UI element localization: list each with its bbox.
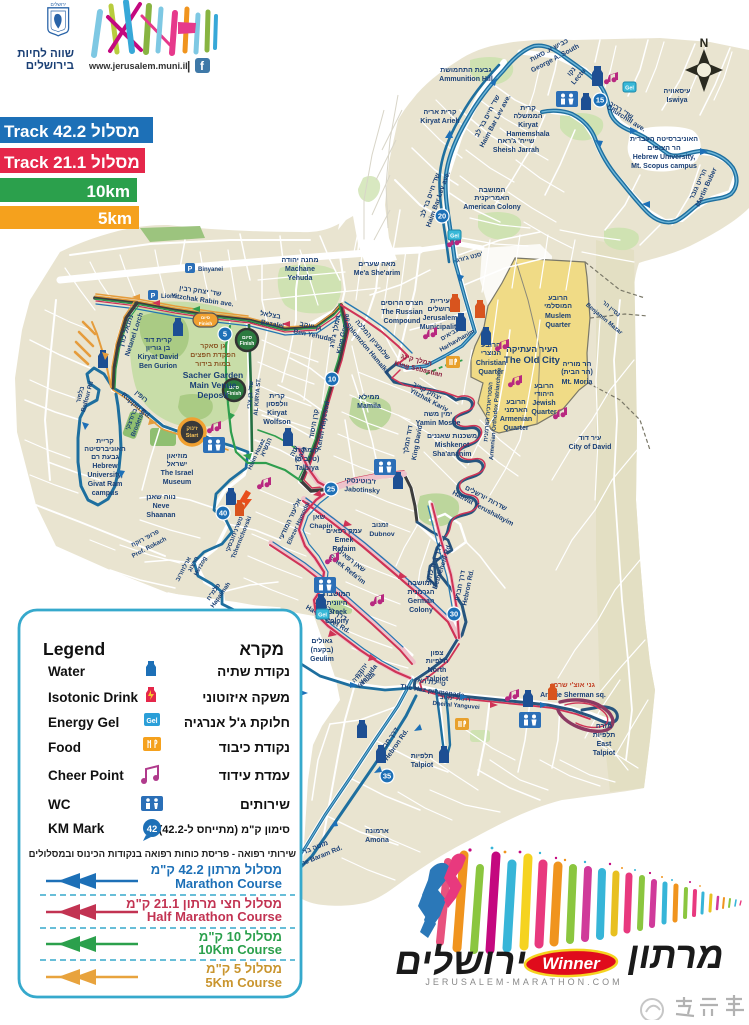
svg-text:Me'a She'arim: Me'a She'arim	[354, 270, 401, 277]
svg-text:גני אוצ'י שרמן: גני אוצ'י שרמן	[551, 682, 596, 689]
svg-text:צפון: צפון	[430, 650, 443, 657]
svg-text:Jerusalem: Jerusalem	[423, 315, 458, 322]
svg-text:40: 40	[219, 509, 227, 518]
svg-text:הגרמנית: הגרמנית	[407, 589, 434, 596]
svg-text:קרית: קרית	[520, 105, 536, 112]
svg-text:Cheer Point: Cheer Point	[48, 768, 124, 783]
svg-text:סימון ק"מ (מתייחס ל-42.2): סימון ק"מ (מתייחס ל-42.2)	[159, 823, 291, 836]
svg-text:שווה לחיות: שווה לחיות	[17, 47, 74, 60]
svg-text:Lions: Lions	[161, 294, 178, 300]
svg-text:5: 5	[223, 330, 227, 339]
svg-text:Winner: Winner	[542, 954, 601, 973]
svg-text:Start: Start	[186, 433, 199, 439]
svg-text:Kiryat: Kiryat	[518, 122, 539, 129]
svg-text:תלפיות: תלפיות	[426, 657, 449, 665]
svg-text:Amona: Amona	[365, 837, 389, 844]
svg-text:15: 15	[596, 96, 604, 105]
svg-text:Machane: Machane	[285, 266, 315, 273]
svg-text:מסלול 5 ק"מ: מסלול 5 ק"מ	[206, 961, 282, 976]
svg-text:Kiryat: Kiryat	[267, 410, 288, 417]
svg-text:42: 42	[147, 824, 158, 835]
svg-text:תלפיות: תלפיות	[411, 752, 434, 760]
svg-text:Wolfson: Wolfson	[263, 419, 290, 426]
svg-text:קרית אריה: קרית אריה	[423, 109, 456, 116]
svg-text:Shaanan: Shaanan	[146, 512, 175, 519]
svg-text:Finish: Finish	[240, 341, 255, 347]
svg-text:הר הצופים: הר הצופים	[647, 145, 681, 152]
svg-text:סיום: סיום	[201, 315, 210, 320]
svg-text:University,: University,	[87, 472, 122, 479]
svg-text:JERUSALEM-MARATHON.COM: JERUSALEM-MARATHON.COM	[425, 977, 622, 987]
svg-text:ארמונה: ארמונה	[365, 828, 389, 835]
svg-text:Ben Gurion: Ben Gurion	[139, 363, 177, 370]
svg-text:שירותים: שירותים	[240, 797, 290, 812]
svg-text:הרובע: הרובע	[506, 399, 526, 406]
svg-text:העיר העתיקה: העיר העתיקה	[506, 344, 558, 354]
svg-text:Food: Food	[48, 740, 81, 755]
svg-text:Finish: Finish	[199, 321, 213, 326]
svg-text:|: |	[187, 59, 190, 73]
svg-text:Finish: Finish	[227, 391, 242, 397]
svg-text:Kiryat David: Kiryat David	[138, 354, 179, 361]
svg-text:Gel: Gel	[318, 613, 327, 619]
svg-text:Geulim: Geulim	[310, 656, 334, 663]
svg-text:N: N	[700, 36, 709, 50]
svg-text:גן סאקר: גן סאקר	[200, 343, 226, 350]
svg-text:הפקדת חפצים: הפקדת חפצים	[190, 352, 236, 359]
svg-text:Kiryat Arieh: Kiryat Arieh	[420, 118, 459, 125]
svg-text:www.jerusalem.muni.il: www.jerusalem.muni.il	[88, 61, 188, 71]
svg-text:המוסלמי: המוסלמי	[544, 302, 572, 310]
svg-text:Binyanei: Binyanei	[198, 267, 223, 273]
svg-text:Main Venue: Main Venue	[190, 380, 237, 390]
svg-text:Hebrew University,: Hebrew University,	[633, 154, 696, 161]
svg-text:בירושלים: בירושלים	[26, 59, 74, 72]
svg-text:Quarter: Quarter	[503, 425, 529, 432]
svg-text:Hamemshala: Hamemshala	[506, 131, 549, 138]
svg-text:הממשלה: הממשלה	[513, 112, 542, 120]
svg-text:הרובע: הרובע	[534, 383, 554, 390]
svg-text:North: North	[428, 667, 447, 674]
svg-text:Neve: Neve	[153, 503, 170, 510]
svg-text:35: 35	[383, 772, 391, 781]
svg-text:זינוק: זינוק	[186, 426, 197, 432]
svg-text:היהודי: היהודי	[534, 391, 554, 398]
svg-text:ירושלים: ירושלים	[392, 940, 531, 982]
svg-text:נווה שאנן: נווה שאנן	[146, 494, 175, 501]
svg-text:Jewish: Jewish	[532, 400, 555, 407]
svg-text:Track 42.2 מסלול: Track 42.2 מסלול	[4, 122, 140, 141]
svg-text:Deposit: Deposit	[197, 390, 228, 400]
svg-text:תלפיות: תלפיות	[593, 731, 616, 739]
svg-text:Marathon Course: Marathon Course	[175, 876, 282, 891]
svg-text:גאולים: גאולים	[311, 637, 333, 645]
svg-text:Mamila: Mamila	[357, 403, 381, 410]
svg-text:הר מוריה: הר מוריה	[563, 361, 592, 368]
svg-text:Track 21.1 מסלול: Track 21.1 מסלול	[4, 153, 140, 172]
svg-text:מסלול מרתון 42.2 ק"מ: מסלול מרתון 42.2 ק"מ	[151, 862, 282, 877]
svg-text:30: 30	[450, 610, 458, 619]
svg-text:Christian: Christian	[476, 360, 506, 367]
svg-text:שייח' ג'ראח: שייח' ג'ראח	[498, 138, 535, 145]
svg-text:Gel: Gel	[625, 86, 634, 92]
svg-text:Talpiot: Talpiot	[593, 750, 616, 757]
svg-text:Ammunition Hill: Ammunition Hill	[439, 76, 493, 83]
svg-text:עיר דוד: עיר דוד	[579, 435, 602, 442]
svg-text:Sha'ananim: Sha'ananim	[432, 451, 471, 458]
svg-text:חלוקת ג'ל אנרגיה: חלוקת ג'ל אנרגיה	[184, 715, 290, 730]
svg-text:10: 10	[328, 375, 336, 384]
svg-text:ממילא: ממילא	[358, 393, 379, 401]
svg-text:גבעת רם: גבעת רם	[91, 454, 120, 461]
svg-text:The Israel: The Israel	[161, 470, 194, 477]
svg-text:Half Marathon Course: Half Marathon Course	[147, 909, 282, 924]
svg-text:במות בידור: במות בידור	[195, 361, 231, 368]
svg-text:20: 20	[438, 212, 446, 221]
svg-text:Water: Water	[48, 664, 86, 679]
svg-text:קרית דוד: קרית דוד	[144, 337, 172, 344]
svg-text:Quarter: Quarter	[531, 409, 557, 416]
svg-text:עיריית: עיריית	[430, 298, 450, 305]
svg-text:Quarter: Quarter	[545, 322, 571, 329]
svg-text:שאן: שאן	[313, 514, 326, 521]
svg-text:Legend: Legend	[43, 639, 105, 659]
svg-text:P: P	[188, 266, 193, 273]
svg-text:(בקעה): (בקעה)	[311, 647, 334, 654]
svg-text:Sacher Garden: Sacher Garden	[183, 370, 243, 380]
svg-text:campus: campus	[92, 490, 119, 497]
svg-text:הארמני: הארמני	[504, 407, 528, 414]
svg-text:Isotonic Drink: Isotonic Drink	[48, 690, 139, 705]
svg-text:Dubnov: Dubnov	[369, 531, 395, 538]
svg-text:Mt. Scopus campus: Mt. Scopus campus	[631, 163, 697, 170]
svg-text:5km: 5km	[98, 209, 132, 228]
svg-text:Hebrew: Hebrew	[92, 463, 118, 470]
svg-text:נקודת שתיה: נקודת שתיה	[217, 664, 290, 679]
svg-text:German: German	[408, 598, 434, 605]
svg-text:מזרח: מזרח	[596, 723, 612, 730]
svg-text:מוזיאון: מוזיאון	[167, 453, 188, 460]
svg-text:קריית: קריית	[96, 438, 114, 445]
svg-text:האמריקנית: האמריקנית	[474, 195, 510, 202]
svg-text:מאה שערים: מאה שערים	[358, 261, 396, 268]
svg-text:East: East	[597, 741, 612, 748]
svg-text:הרובע: הרובע	[548, 295, 568, 302]
svg-text:משכנות שאננים: משכנות שאננים	[427, 433, 477, 440]
svg-text:האוניברסיטה העברית: האוניברסיטה העברית	[630, 136, 698, 143]
svg-text:American Colony: American Colony	[463, 204, 521, 211]
svg-text:Gel: Gel	[146, 718, 157, 725]
svg-text:עיסאוויה: עיסאוויה	[664, 88, 691, 95]
svg-text:ישראל: ישראל	[167, 460, 187, 468]
svg-text:Gel: Gel	[450, 234, 459, 240]
svg-text:(הר הבית): (הר הבית)	[561, 369, 593, 376]
svg-text:Mt. Moria: Mt. Moria	[562, 379, 593, 386]
svg-text:Mishkenot: Mishkenot	[435, 442, 470, 449]
svg-text:Yehuda: Yehuda	[288, 275, 313, 282]
svg-text:5Km Course: 5Km Course	[205, 975, 282, 990]
svg-text:ירושלים: ירושלים	[428, 305, 453, 313]
svg-text:מרתון: מרתון	[625, 934, 728, 976]
svg-text:Armenian: Armenian	[500, 416, 532, 423]
svg-text:Talbiya: Talbiya	[295, 465, 319, 472]
svg-text:Colony: Colony	[409, 607, 433, 614]
svg-text:10km: 10km	[87, 182, 130, 201]
svg-text:Energy Gel: Energy Gel	[48, 715, 119, 730]
svg-text:Talpiot: Talpiot	[411, 762, 434, 769]
svg-text:WC: WC	[48, 797, 71, 812]
svg-text:האוניברסיטה: האוניברסיטה	[84, 446, 126, 453]
svg-text:מחנה יהודה: מחנה יהודה	[281, 257, 318, 264]
svg-text:קרית: קרית	[269, 393, 285, 400]
svg-text:מקרא: מקרא	[239, 640, 284, 659]
svg-text:City of David: City of David	[569, 444, 612, 451]
svg-text:P: P	[151, 293, 156, 300]
svg-text:Sheish Jarrah: Sheish Jarrah	[493, 147, 539, 154]
svg-text:Muslem: Muslem	[545, 313, 571, 320]
svg-text:עמדת עידוד: עמדת עידוד	[219, 768, 290, 783]
svg-text:משקה איזוטוני: משקה איזוטוני	[202, 690, 290, 705]
svg-text:Museum: Museum	[163, 479, 191, 486]
svg-text:המושבה: המושבה	[479, 187, 506, 194]
svg-text:25: 25	[327, 485, 335, 494]
svg-text:KM Mark: KM Mark	[48, 821, 105, 836]
svg-text:Iswiya: Iswiya	[666, 97, 687, 104]
svg-text:וולפסון: וולפסון	[266, 400, 288, 408]
svg-text:נקודת כיבוד: נקודת כיבוד	[219, 740, 290, 755]
svg-text:Givat Ram: Givat Ram	[88, 481, 123, 488]
svg-text:גבעת התחמושת: גבעת התחמושת	[440, 67, 492, 74]
svg-text:The Russian: The Russian	[381, 309, 423, 316]
svg-text:10Km Course: 10Km Course	[198, 942, 282, 957]
svg-text:Chapin: Chapin	[309, 523, 332, 530]
svg-text:שירותי רפואה - פריסת כוחות רפו: שירותי רפואה - פריסת כוחות רפואה בנקודות…	[29, 849, 297, 860]
svg-text:בן גוריון: בן גוריון	[146, 345, 171, 352]
svg-text:ימין משה: ימין משה	[424, 411, 453, 418]
svg-text:Compound: Compound	[384, 318, 421, 325]
svg-text:חצרס הרוסים: חצרס הרוסים	[381, 300, 424, 307]
svg-text:Emek: Emek	[335, 537, 354, 544]
svg-text:זמנוב: זמנוב	[372, 522, 389, 529]
svg-text:The Old City: The Old City	[504, 355, 561, 366]
